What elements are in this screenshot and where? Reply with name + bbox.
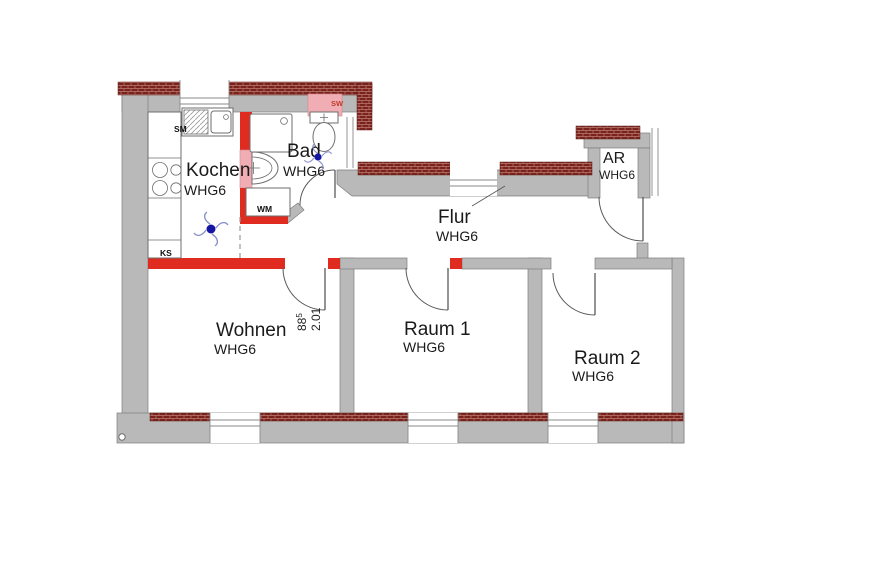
sink-unit	[182, 108, 233, 136]
window-raum1-punch	[408, 413, 458, 443]
room-label-raum2: Raum 2	[574, 348, 641, 369]
brick-top-left	[118, 82, 180, 95]
door-swing-arc	[599, 197, 643, 241]
door-raum2	[553, 273, 595, 315]
wall-band-gray-3	[595, 258, 672, 269]
door-swing-arc	[553, 273, 595, 315]
brick-top-bad	[229, 82, 372, 95]
brick-bottom-4	[598, 413, 683, 421]
room-unit-raum2: WHG6	[572, 368, 614, 384]
ceiling-lamp-icon	[194, 212, 228, 246]
dimension-width: 885	[295, 313, 309, 331]
door-raum1	[406, 268, 448, 310]
red-wall-wohnen-top	[148, 258, 285, 269]
lamp-arm	[322, 152, 332, 156]
brick-flur-right	[500, 162, 592, 175]
window-ar-east	[652, 128, 658, 196]
red-stub-raum1-door	[450, 258, 462, 269]
shower-tray	[250, 114, 292, 152]
label-washing-machine: WM	[257, 204, 272, 214]
brick-flur-left	[358, 162, 450, 175]
room-unit-bad: WHG6	[283, 163, 325, 179]
shower	[250, 114, 292, 152]
room-unit-ar: WHG6	[599, 168, 635, 182]
wall-band-gray-2	[462, 258, 551, 269]
room-label-kochen: Kochen	[186, 160, 250, 181]
window-bad-east	[347, 117, 353, 168]
brick-bottom-1	[150, 413, 210, 421]
washbasin	[247, 152, 278, 184]
brick-ar-top	[576, 126, 640, 139]
room-unit-kochen: WHG6	[184, 182, 226, 198]
label-sink-unit: SM	[174, 124, 187, 134]
wall-left	[122, 94, 148, 420]
door-swing-arc	[283, 268, 325, 310]
room-unit-flur: WHG6	[436, 228, 478, 244]
brick-column-bad-east	[357, 84, 372, 130]
room-label-flur: Flur	[438, 207, 471, 228]
wall-stub-ar	[637, 243, 648, 260]
lamp-center	[207, 225, 216, 234]
room-label-wohnen: Wohnen	[216, 320, 286, 341]
window-kitchen-punch	[180, 80, 229, 112]
floor-plan-canvas: Kochen WHG6 Bad WHG6 Flur WHG6 AR WHG6 W…	[0, 0, 890, 581]
wall-ar-right	[638, 148, 650, 198]
lamp-arm	[194, 230, 206, 235]
label-shaft: SW	[331, 99, 344, 108]
brick-bottom-2	[260, 413, 408, 421]
wall-wohnen-raum1	[340, 258, 354, 415]
window-raum2-punch	[548, 413, 598, 443]
dimension-annotation: 885 2.01	[295, 307, 323, 331]
door-swing-arc	[406, 268, 448, 310]
sink-basin	[211, 111, 231, 133]
wall-band-gray-1	[340, 258, 407, 269]
window-wohnen-punch	[210, 413, 260, 443]
door-wohnen	[283, 268, 325, 310]
brick-bottom-3	[458, 413, 548, 421]
wall-raum1-raum2	[528, 258, 542, 415]
door-ar	[599, 197, 643, 241]
lamp-arm	[205, 212, 210, 224]
red-stub-wohnen-door	[328, 258, 340, 269]
corner-marker	[119, 434, 125, 440]
lamp-arm	[216, 223, 228, 228]
lamp-arm	[212, 234, 217, 246]
room-label-raum1: Raum 1	[404, 319, 471, 340]
room-unit-wohnen: WHG6	[214, 341, 256, 357]
lamp-center	[314, 153, 321, 160]
dimension-height: 2.01	[309, 307, 323, 331]
floor-plan: Kochen WHG6 Bad WHG6 Flur WHG6 AR WHG6 W…	[0, 0, 890, 581]
room-label-ar: AR	[603, 150, 625, 167]
room-unit-raum1: WHG6	[403, 339, 445, 355]
sink-drainer	[184, 110, 208, 134]
window-flur-punch	[450, 162, 497, 196]
label-fridge: KS	[160, 248, 172, 258]
